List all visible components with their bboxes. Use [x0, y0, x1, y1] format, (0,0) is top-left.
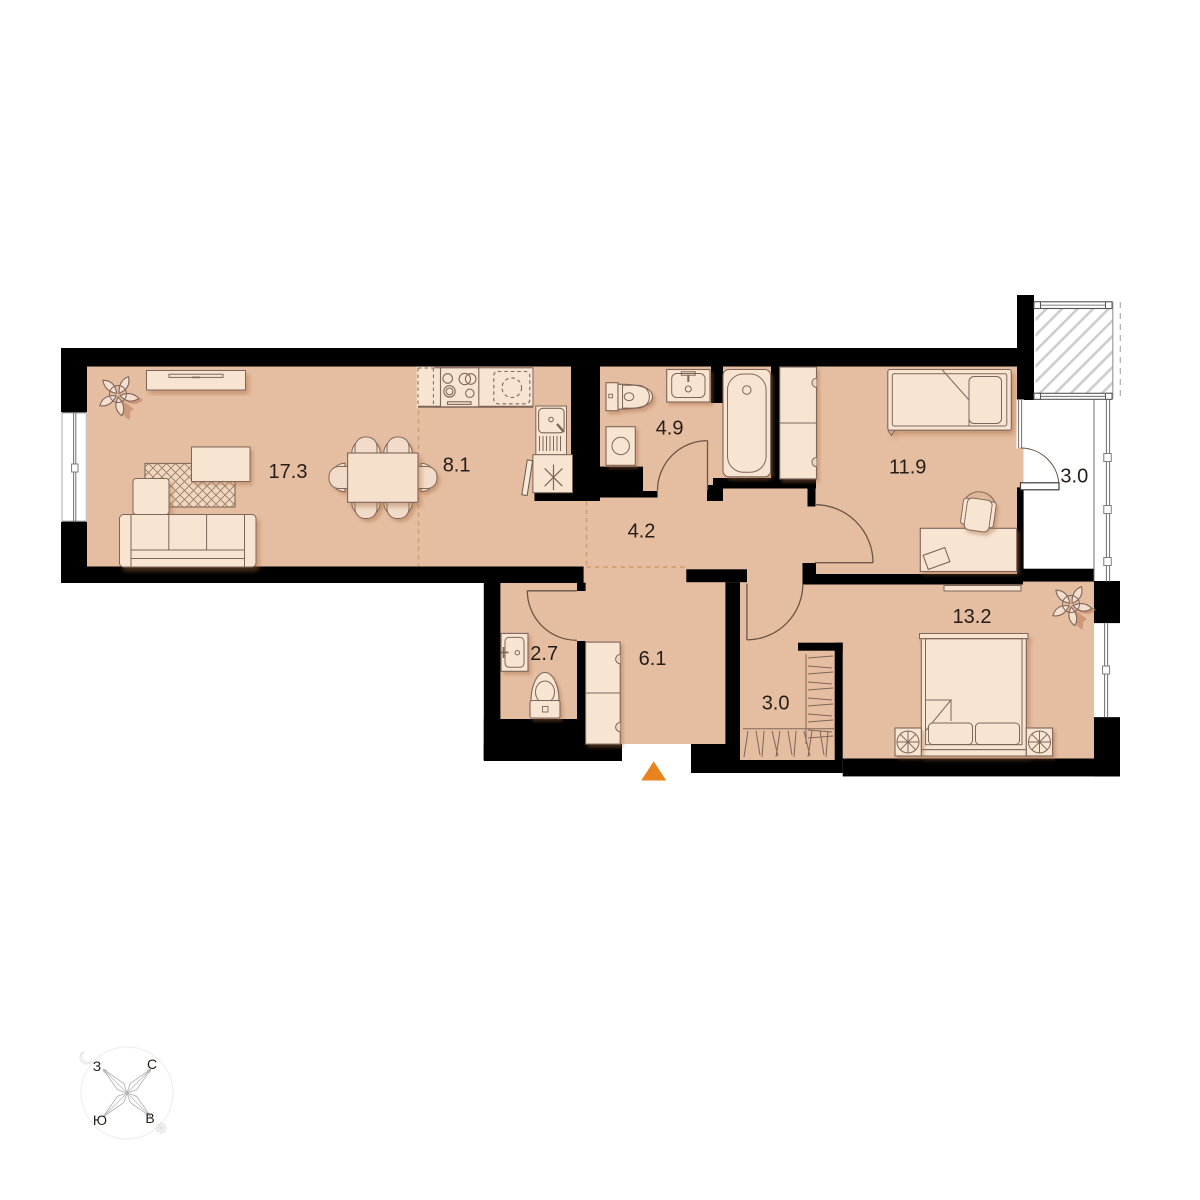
svg-text:4.9: 4.9: [656, 418, 684, 440]
svg-text:3.0: 3.0: [1060, 466, 1088, 488]
svg-text:Ю: Ю: [93, 1112, 107, 1128]
svg-text:С: С: [147, 1056, 157, 1072]
svg-text:2.7: 2.7: [530, 643, 558, 665]
svg-text:6.1: 6.1: [639, 648, 667, 670]
svg-text:13.2: 13.2: [953, 606, 992, 628]
svg-text:З: З: [93, 1058, 101, 1074]
svg-text:8.1: 8.1: [443, 454, 471, 476]
svg-text:4.2: 4.2: [628, 521, 656, 543]
svg-text:11.9: 11.9: [889, 456, 926, 478]
svg-text:17.3: 17.3: [269, 461, 308, 483]
svg-text:В: В: [145, 1110, 154, 1126]
svg-text:3.0: 3.0: [762, 692, 790, 714]
